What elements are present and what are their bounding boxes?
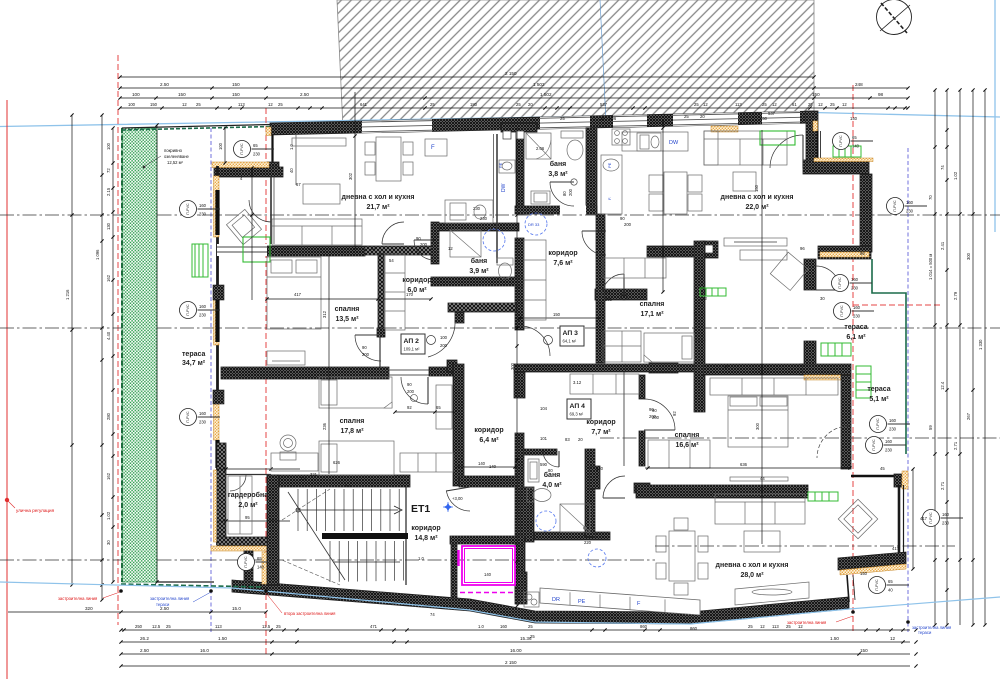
svg-text:12: 12 bbox=[352, 246, 357, 251]
svg-text:16.0: 16.0 bbox=[200, 648, 209, 653]
svg-text:7,7 м²: 7,7 м² bbox=[591, 429, 611, 436]
svg-text:25: 25 bbox=[808, 102, 813, 107]
svg-text:6,1 м²: 6,1 м² bbox=[846, 334, 866, 341]
svg-text:тераса: тераса bbox=[844, 324, 867, 331]
svg-text:280: 280 bbox=[106, 412, 111, 420]
svg-text:65: 65 bbox=[253, 143, 258, 148]
svg-text:1 330: 1 330 bbox=[978, 339, 983, 350]
svg-text:170: 170 bbox=[406, 292, 414, 297]
svg-text:12: 12 bbox=[818, 102, 823, 107]
svg-text:150: 150 bbox=[232, 92, 240, 97]
svg-text:2.41: 2.41 bbox=[940, 241, 945, 250]
svg-text:104: 104 bbox=[540, 406, 548, 411]
svg-text:28,0 м²: 28,0 м² bbox=[740, 572, 764, 579]
svg-text:54: 54 bbox=[389, 258, 394, 263]
svg-text:162: 162 bbox=[106, 472, 111, 480]
svg-text:баня: баня bbox=[550, 160, 567, 168]
svg-text:61: 61 bbox=[792, 102, 797, 107]
svg-text:537: 537 bbox=[768, 111, 776, 116]
svg-text:покривно: покривно bbox=[164, 148, 183, 153]
svg-text:DR: DR bbox=[552, 597, 560, 603]
svg-text:230: 230 bbox=[906, 209, 914, 214]
svg-text:90: 90 bbox=[416, 236, 421, 241]
svg-text:230: 230 bbox=[199, 212, 207, 217]
svg-text:17,1 м²: 17,1 м² bbox=[640, 311, 664, 318]
svg-text:1 096: 1 096 bbox=[95, 249, 100, 260]
svg-text:DW: DW bbox=[669, 140, 679, 146]
svg-text:14,8 м²: 14,8 м² bbox=[414, 535, 438, 542]
svg-text:П-РVС: П-РVС bbox=[839, 135, 843, 147]
svg-text:втора застроителна линия: втора застроителна линия bbox=[284, 611, 335, 616]
svg-text:150: 150 bbox=[860, 571, 868, 576]
svg-text:417: 417 bbox=[294, 292, 302, 297]
svg-text:471: 471 bbox=[370, 624, 378, 629]
svg-text:25: 25 bbox=[528, 624, 533, 629]
svg-text:140: 140 bbox=[257, 565, 265, 570]
svg-text:12: 12 bbox=[842, 102, 847, 107]
svg-text:150: 150 bbox=[232, 82, 240, 87]
svg-text:267: 267 bbox=[966, 412, 971, 420]
svg-text:100: 100 bbox=[132, 92, 140, 97]
svg-text:20: 20 bbox=[528, 102, 533, 107]
svg-text:П-РVС: П-РVС bbox=[244, 556, 248, 568]
svg-text:90: 90 bbox=[407, 382, 412, 387]
svg-text:74: 74 bbox=[940, 165, 945, 170]
svg-text:12.4: 12.4 bbox=[940, 381, 945, 390]
svg-text:65: 65 bbox=[888, 579, 893, 584]
svg-text:П-РVС: П-РVС bbox=[876, 418, 880, 430]
svg-text:230: 230 bbox=[480, 216, 488, 221]
svg-text:250: 250 bbox=[135, 624, 143, 629]
svg-text:320: 320 bbox=[85, 606, 93, 611]
svg-text:16,6 м²: 16,6 м² bbox=[675, 442, 699, 449]
svg-text:40: 40 bbox=[888, 588, 893, 593]
svg-text:130: 130 bbox=[106, 222, 111, 230]
svg-text:90: 90 bbox=[362, 345, 367, 350]
svg-text:30: 30 bbox=[106, 540, 111, 545]
svg-text:113: 113 bbox=[772, 624, 779, 629]
svg-text:П-РVС: П-РVС bbox=[186, 203, 190, 215]
svg-text:2.06: 2.06 bbox=[536, 146, 545, 151]
svg-text:636: 636 bbox=[740, 462, 748, 467]
svg-text:150: 150 bbox=[178, 92, 186, 97]
svg-text:101: 101 bbox=[540, 436, 548, 441]
svg-text:тераси: тераси bbox=[156, 602, 170, 607]
svg-text:72: 72 bbox=[106, 168, 111, 173]
svg-text:64,1 м²: 64,1 м² bbox=[563, 339, 577, 344]
svg-text:25: 25 bbox=[166, 624, 171, 629]
svg-text:25: 25 bbox=[516, 102, 521, 107]
svg-text:70: 70 bbox=[928, 195, 933, 200]
svg-text:тераси: тераси bbox=[918, 630, 932, 635]
svg-text:150: 150 bbox=[760, 116, 768, 121]
svg-text:95: 95 bbox=[245, 515, 250, 520]
svg-text:30: 30 bbox=[820, 296, 825, 301]
svg-text:АП 2: АП 2 bbox=[404, 338, 420, 345]
svg-text:230: 230 bbox=[885, 448, 893, 453]
svg-text:300: 300 bbox=[966, 252, 971, 260]
svg-text:коридор: коридор bbox=[402, 277, 431, 284]
svg-text:2 150: 2 150 bbox=[505, 71, 517, 76]
svg-text:220: 220 bbox=[584, 540, 592, 545]
svg-text:100: 100 bbox=[128, 102, 136, 107]
svg-text:44: 44 bbox=[760, 476, 765, 481]
svg-text:65: 65 bbox=[257, 556, 262, 561]
svg-text:17,8 м²: 17,8 м² bbox=[340, 428, 364, 435]
svg-text:113: 113 bbox=[735, 102, 742, 107]
svg-text:140: 140 bbox=[478, 461, 486, 466]
svg-text:дневна с хол и кухня: дневна с хол и кухня bbox=[342, 194, 415, 201]
svg-text:РЕ: РЕ bbox=[607, 162, 612, 168]
svg-text:12: 12 bbox=[448, 246, 453, 251]
svg-text:АП 3: АП 3 bbox=[563, 330, 579, 337]
svg-text:150: 150 bbox=[754, 184, 759, 192]
svg-text:100: 100 bbox=[218, 142, 223, 150]
svg-text:90: 90 bbox=[605, 290, 610, 295]
svg-text:150: 150 bbox=[860, 648, 868, 653]
svg-text:коридор: коридор bbox=[411, 525, 440, 532]
svg-text:12: 12 bbox=[760, 624, 765, 629]
svg-text:25: 25 bbox=[560, 116, 565, 121]
svg-text:П-РVС: П-РVС bbox=[929, 512, 933, 524]
svg-text:6.36: 6.36 bbox=[648, 246, 657, 251]
svg-text:П-РVС: П-РVС bbox=[838, 277, 842, 289]
svg-text:54: 54 bbox=[371, 246, 376, 251]
svg-text:200: 200 bbox=[568, 188, 573, 196]
svg-text:92: 92 bbox=[672, 411, 677, 416]
svg-text:25: 25 bbox=[684, 114, 689, 119]
svg-text:109,1 м²: 109,1 м² bbox=[404, 347, 421, 352]
svg-text:2.71: 2.71 bbox=[953, 441, 958, 450]
svg-text:1.0: 1.0 bbox=[418, 556, 424, 561]
svg-text:44: 44 bbox=[724, 364, 729, 369]
svg-text:1.0: 1.0 bbox=[289, 144, 294, 150]
svg-text:69,3 м²: 69,3 м² bbox=[570, 412, 584, 417]
svg-text:230: 230 bbox=[942, 521, 950, 526]
svg-text:12,52 м²: 12,52 м² bbox=[167, 160, 184, 165]
svg-text:100: 100 bbox=[106, 142, 111, 150]
svg-text:DR 33: DR 33 bbox=[528, 222, 540, 227]
svg-text:АП 4: АП 4 bbox=[570, 403, 586, 410]
svg-text:160: 160 bbox=[199, 411, 207, 416]
svg-text:25: 25 bbox=[530, 634, 535, 639]
svg-text:12: 12 bbox=[772, 102, 777, 107]
svg-text:160: 160 bbox=[199, 203, 207, 208]
svg-text:113: 113 bbox=[215, 624, 222, 629]
svg-text:180: 180 bbox=[470, 102, 478, 107]
svg-text:1.0: 1.0 bbox=[478, 624, 484, 629]
svg-text:230: 230 bbox=[851, 286, 859, 291]
svg-text:21,7 м²: 21,7 м² bbox=[366, 204, 390, 211]
svg-text:200: 200 bbox=[652, 415, 660, 420]
svg-text:20: 20 bbox=[700, 114, 705, 119]
svg-text:100: 100 bbox=[440, 335, 448, 340]
svg-text:25: 25 bbox=[748, 624, 753, 629]
svg-text:230: 230 bbox=[253, 152, 261, 157]
svg-text:140: 140 bbox=[852, 144, 860, 149]
svg-text:162: 162 bbox=[106, 274, 111, 282]
svg-text:230: 230 bbox=[199, 420, 207, 425]
svg-text:860: 860 bbox=[690, 626, 698, 631]
svg-text:спалня: спалня bbox=[335, 306, 360, 313]
svg-text:13,5 м²: 13,5 м² bbox=[335, 316, 359, 323]
svg-text:74: 74 bbox=[430, 612, 435, 617]
svg-text:16.00: 16.00 bbox=[510, 648, 522, 653]
svg-text:дневна с хол и кухня: дневна с хол и кухня bbox=[716, 562, 789, 569]
svg-text:улична регулация: улична регулация bbox=[16, 508, 55, 513]
svg-text:П-РVС: П-РVС bbox=[893, 200, 897, 212]
svg-text:300: 300 bbox=[755, 422, 760, 430]
svg-text:2.15: 2.15 bbox=[106, 187, 111, 196]
svg-text:тераса: тераса bbox=[867, 386, 890, 393]
svg-text:15.0: 15.0 bbox=[232, 606, 241, 611]
svg-text:590: 590 bbox=[540, 462, 548, 467]
svg-text:1.50: 1.50 bbox=[830, 636, 839, 641]
svg-text:160: 160 bbox=[942, 512, 950, 517]
svg-text:67: 67 bbox=[296, 182, 301, 187]
svg-text:П-РVС: П-РVС bbox=[840, 305, 844, 317]
svg-text:12: 12 bbox=[182, 102, 187, 107]
svg-text:2,0 м²: 2,0 м² bbox=[238, 502, 258, 509]
svg-text:коридор: коридор bbox=[474, 427, 503, 434]
svg-text:25: 25 bbox=[196, 102, 201, 107]
svg-text:92: 92 bbox=[407, 405, 412, 410]
svg-text:248: 248 bbox=[855, 82, 863, 87]
svg-text:баня: баня bbox=[471, 257, 488, 265]
svg-text:П-РVС: П-РVС bbox=[186, 411, 190, 423]
svg-text:160: 160 bbox=[885, 439, 893, 444]
svg-text:ЕТ1: ЕТ1 bbox=[411, 503, 430, 515]
svg-text:F: F bbox=[431, 145, 435, 151]
svg-text:2.71: 2.71 bbox=[940, 481, 945, 490]
svg-text:113: 113 bbox=[238, 102, 245, 107]
svg-text:312: 312 bbox=[322, 310, 327, 318]
svg-text:230: 230 bbox=[199, 313, 207, 318]
svg-text:83: 83 bbox=[565, 437, 570, 442]
svg-text:коридор: коридор bbox=[548, 250, 577, 257]
svg-text:1.02: 1.02 bbox=[953, 171, 958, 180]
svg-text:12: 12 bbox=[703, 102, 708, 107]
svg-text:160: 160 bbox=[199, 304, 207, 309]
svg-text:321: 321 bbox=[300, 476, 308, 481]
svg-text:90: 90 bbox=[652, 408, 657, 413]
svg-text:200: 200 bbox=[624, 222, 632, 227]
svg-text:25: 25 bbox=[694, 102, 699, 107]
svg-text:застроителна линия: застроителна линия bbox=[150, 596, 189, 601]
svg-text:3,9 м²: 3,9 м² bbox=[469, 268, 489, 275]
svg-text:140: 140 bbox=[850, 116, 858, 121]
svg-text:застроителна линия: застроителна линия bbox=[58, 596, 97, 601]
svg-text:12.5: 12.5 bbox=[262, 624, 271, 629]
svg-text:321: 321 bbox=[310, 472, 318, 477]
svg-text:спалня: спалня bbox=[340, 418, 365, 425]
svg-text:200: 200 bbox=[407, 389, 415, 394]
svg-text:озеленяване: озеленяване bbox=[164, 154, 190, 159]
svg-text:2.50: 2.50 bbox=[160, 82, 169, 87]
svg-text:1 502: 1 502 bbox=[540, 92, 552, 97]
svg-text:230: 230 bbox=[853, 314, 861, 319]
svg-text:4,0 м²: 4,0 м² bbox=[542, 482, 562, 489]
svg-text:860: 860 bbox=[640, 624, 648, 629]
svg-text:160: 160 bbox=[500, 624, 508, 629]
svg-text:140: 140 bbox=[489, 464, 497, 469]
svg-text:25: 25 bbox=[276, 624, 281, 629]
svg-text:96: 96 bbox=[860, 251, 865, 256]
svg-text:200: 200 bbox=[605, 297, 613, 302]
svg-text:180: 180 bbox=[600, 116, 608, 121]
svg-text:302: 302 bbox=[348, 172, 353, 180]
svg-text:80: 80 bbox=[562, 191, 567, 196]
svg-text:150: 150 bbox=[553, 312, 561, 317]
svg-text:25: 25 bbox=[762, 102, 767, 107]
svg-text:коридор: коридор bbox=[586, 419, 615, 426]
svg-text:1.02: 1.02 bbox=[106, 511, 111, 520]
svg-text:дневна с хол и кухня: дневна с хол и кухня bbox=[721, 194, 794, 201]
svg-text:застроителна линия: застроителна линия bbox=[787, 620, 826, 625]
svg-text:25: 25 bbox=[830, 102, 835, 107]
svg-text:4.40: 4.40 bbox=[106, 331, 111, 340]
svg-text:200: 200 bbox=[362, 352, 370, 357]
svg-text:тераса: тераса bbox=[182, 351, 205, 358]
svg-text:П-РVС: П-РVС bbox=[875, 579, 879, 591]
svg-text:150: 150 bbox=[812, 92, 820, 97]
svg-text:200: 200 bbox=[440, 343, 448, 348]
svg-text:641: 641 bbox=[360, 102, 368, 107]
svg-text:2 150: 2 150 bbox=[505, 660, 517, 665]
svg-text:1 014 = 500 м: 1 014 = 500 м bbox=[928, 254, 933, 280]
svg-text:П-РVС: П-РVС bbox=[872, 439, 876, 451]
svg-text:140: 140 bbox=[484, 572, 492, 577]
svg-text:12: 12 bbox=[890, 636, 896, 641]
svg-text:160: 160 bbox=[906, 200, 914, 205]
svg-text:98: 98 bbox=[878, 92, 884, 97]
svg-text:DW: DW bbox=[501, 183, 507, 192]
svg-text:6,4 м²: 6,4 м² bbox=[479, 437, 499, 444]
svg-text:96: 96 bbox=[800, 246, 805, 251]
svg-text:537: 537 bbox=[600, 102, 608, 107]
svg-text:1 502: 1 502 bbox=[533, 82, 545, 87]
svg-text:гардеробна: гардеробна bbox=[228, 491, 268, 499]
svg-text:7,6 м²: 7,6 м² bbox=[553, 260, 573, 267]
svg-text:160: 160 bbox=[851, 277, 859, 282]
svg-text:230: 230 bbox=[889, 427, 897, 432]
svg-text:150: 150 bbox=[150, 102, 158, 107]
svg-text:626: 626 bbox=[333, 460, 341, 465]
svg-text:РЕ: РЕ bbox=[578, 599, 586, 605]
svg-text:160: 160 bbox=[889, 418, 897, 423]
svg-text:59: 59 bbox=[928, 425, 933, 430]
svg-text:2.50: 2.50 bbox=[300, 92, 309, 97]
svg-text:160: 160 bbox=[853, 305, 861, 310]
svg-text:5.57: 5.57 bbox=[693, 311, 698, 320]
svg-text:34,7 м²: 34,7 м² bbox=[182, 360, 206, 367]
svg-text:F.: F. bbox=[607, 197, 612, 200]
svg-text:1.06: 1.06 bbox=[608, 116, 617, 121]
svg-text:3,8 м²: 3,8 м² bbox=[548, 171, 568, 178]
svg-text:417: 417 bbox=[920, 516, 928, 521]
svg-text:26.2: 26.2 bbox=[140, 636, 149, 641]
svg-text:12.5: 12.5 bbox=[152, 624, 161, 629]
svg-text:200: 200 bbox=[420, 242, 428, 247]
svg-text:236: 236 bbox=[322, 422, 327, 430]
svg-text:2.79: 2.79 bbox=[953, 291, 958, 300]
svg-text:П-РVС: П-РVС bbox=[240, 143, 244, 155]
svg-text:3.12: 3.12 bbox=[573, 380, 582, 385]
svg-text:20: 20 bbox=[578, 437, 583, 442]
svg-text:90: 90 bbox=[620, 216, 625, 221]
svg-text:65: 65 bbox=[436, 405, 441, 410]
svg-text:5,1 м²: 5,1 м² bbox=[869, 396, 889, 403]
svg-text:182: 182 bbox=[700, 296, 708, 301]
svg-text:9.2: 9.2 bbox=[345, 483, 351, 488]
svg-text:140: 140 bbox=[596, 466, 604, 471]
svg-text:45: 45 bbox=[880, 466, 885, 471]
svg-text:40: 40 bbox=[289, 168, 294, 173]
svg-text:1.50: 1.50 bbox=[218, 636, 227, 641]
svg-text:25: 25 bbox=[430, 102, 435, 107]
svg-text:22,0 м²: 22,0 м² bbox=[745, 204, 769, 211]
svg-text:П-РVС: П-РVС bbox=[186, 304, 190, 316]
svg-text:2.50: 2.50 bbox=[140, 648, 149, 653]
svg-text:спалня: спалня bbox=[675, 432, 700, 439]
svg-text:300: 300 bbox=[510, 362, 515, 370]
svg-text:+3,00: +3,00 bbox=[452, 496, 463, 501]
svg-text:12: 12 bbox=[268, 102, 273, 107]
svg-text:417: 417 bbox=[892, 546, 900, 551]
svg-text:1 216: 1 216 bbox=[65, 289, 70, 300]
svg-text:80: 80 bbox=[548, 468, 553, 473]
svg-text:25: 25 bbox=[278, 102, 283, 107]
svg-text:спалня: спалня bbox=[640, 301, 665, 308]
svg-text:65: 65 bbox=[852, 135, 857, 140]
